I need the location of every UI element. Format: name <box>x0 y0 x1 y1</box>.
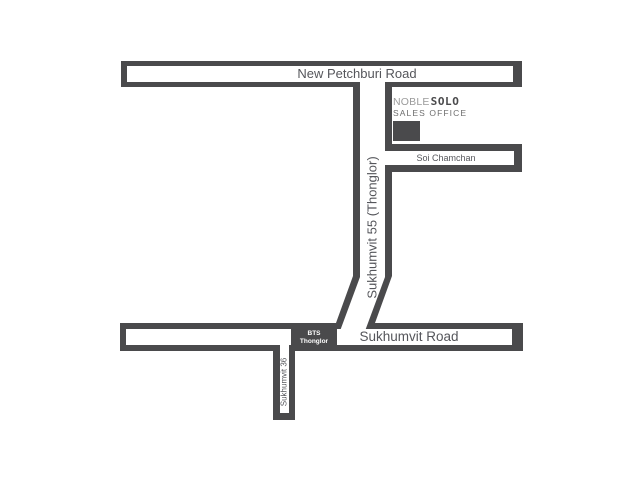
sales-office-building-marker <box>393 121 420 141</box>
brand-noble-text: NOBLE <box>393 96 430 108</box>
bts-station-line2: Thonglor <box>300 338 328 346</box>
road-label-sukhumvit-road: Sukhumvit Road <box>309 329 509 345</box>
sales-office-logo: NOBLESOLO SALES OFFICE <box>393 95 467 118</box>
sales-office-subtitle: SALES OFFICE <box>393 108 467 118</box>
road-label-new-petchburi: New Petchburi Road <box>257 66 457 82</box>
map-canvas: New Petchburi Road Soi Chamchan Sukhumvi… <box>0 0 640 480</box>
bts-station-line1: BTS <box>308 330 321 338</box>
brand-name: NOBLESOLO <box>393 95 467 107</box>
brand-solo-text: SOLO <box>431 95 460 108</box>
road-label-sukhumvit-55: Sukhumvit 55 (Thonglor) <box>365 148 380 308</box>
road-label-soi-chamchan: Soi Chamchan <box>378 151 514 165</box>
bts-station-marker: BTS Thonglor <box>291 329 337 346</box>
road-label-sukhumvit-36: Sukhumvit 36 <box>280 352 290 413</box>
